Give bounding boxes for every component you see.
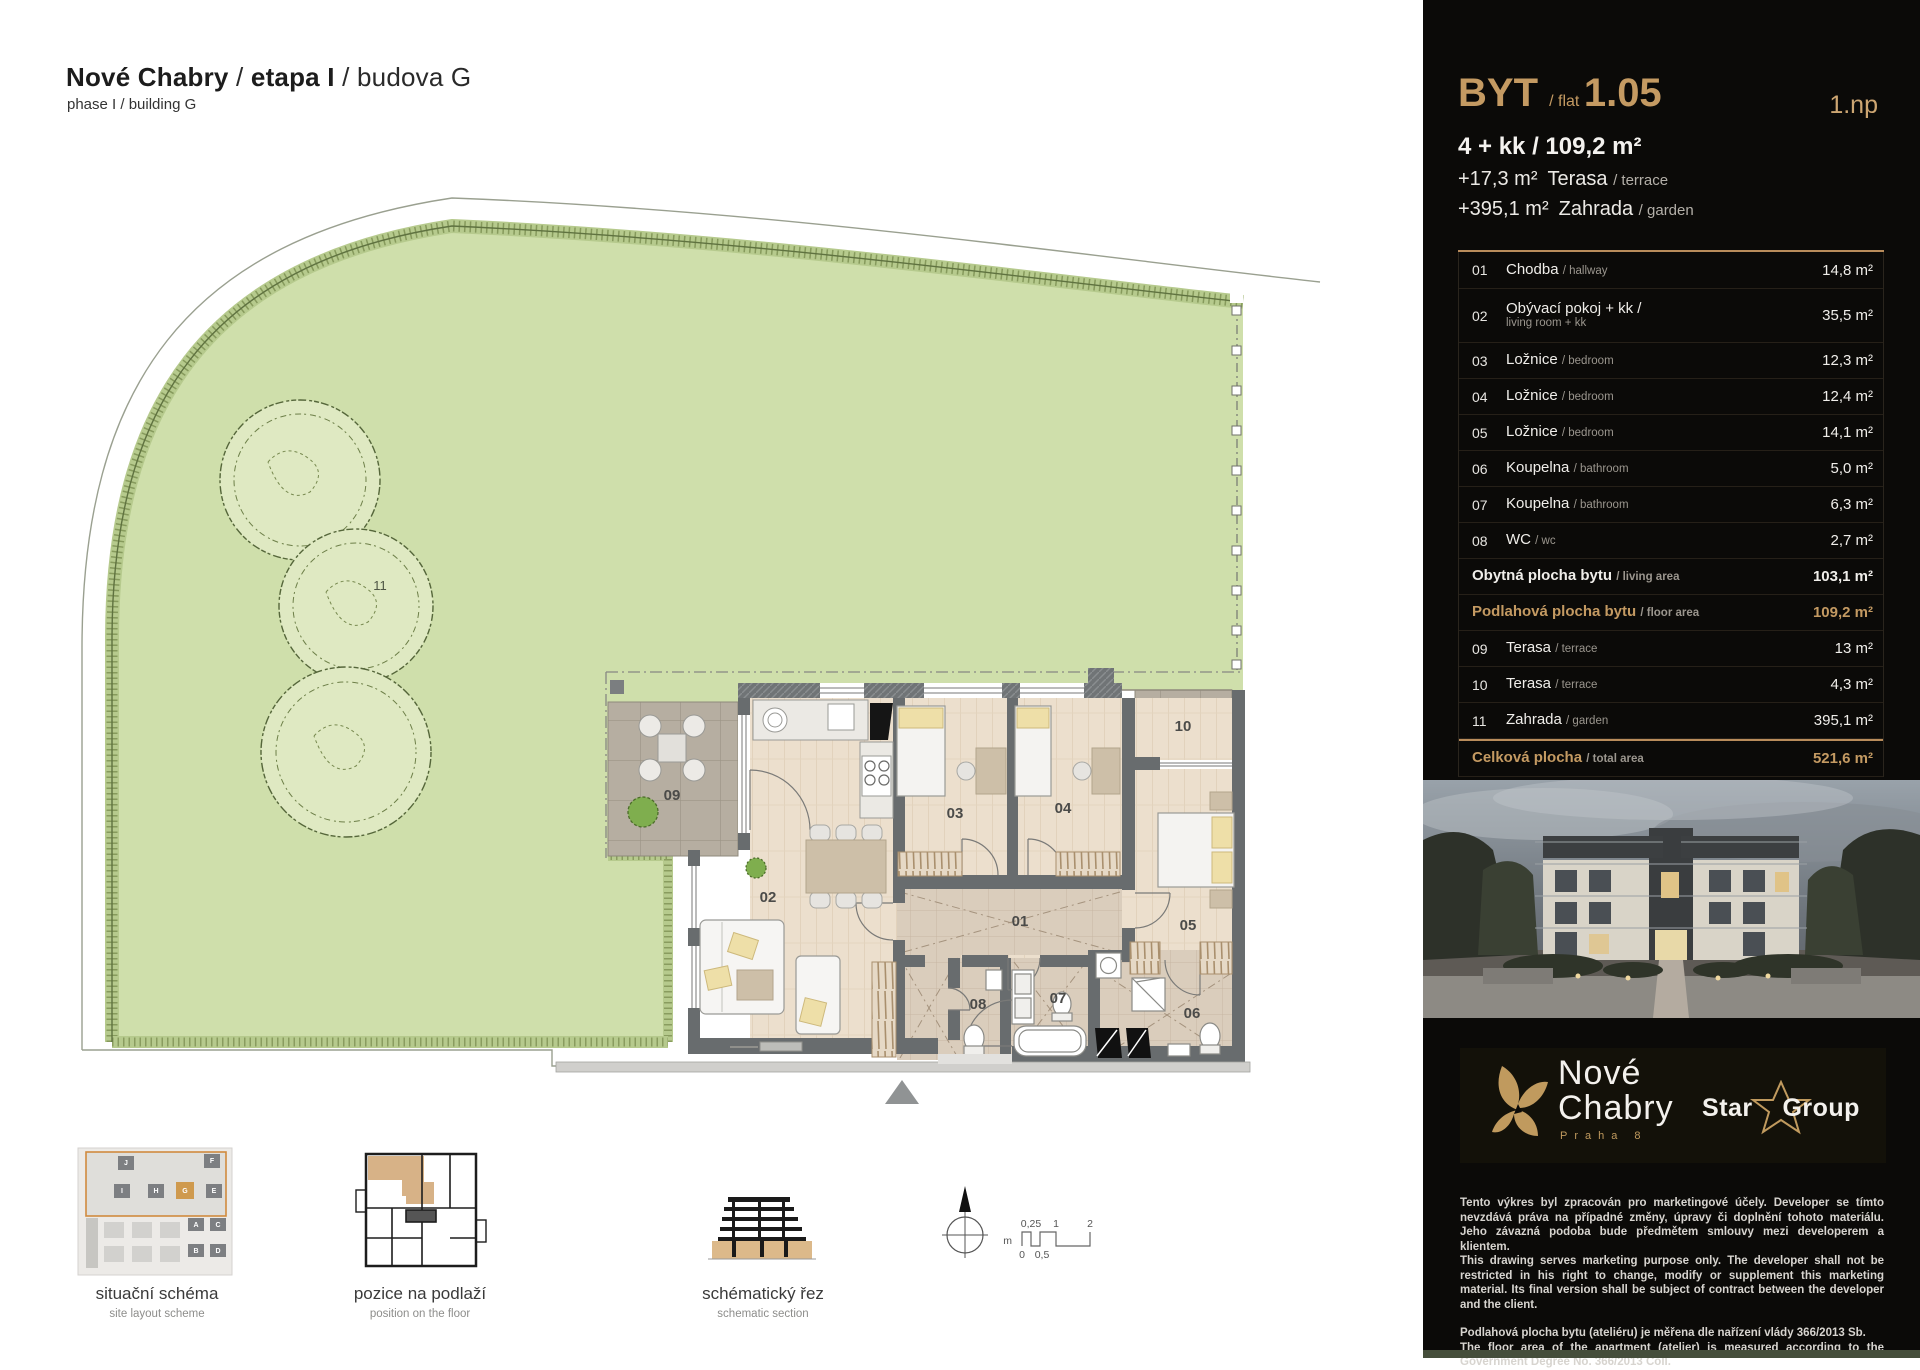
logo-block: Nové Chabry Praha 8 Star Group (1460, 1048, 1886, 1163)
scale-bar: 0,25 1 2 0 0,5 m (1003, 1218, 1093, 1261)
legal-paragraph-cz: Tento výkres byl zpracován pro marketing… (1460, 1196, 1884, 1254)
terrace-09 (608, 702, 738, 856)
section-thumbnail (708, 1197, 816, 1259)
terrace-area-line: +17,3 m²Terasa / terrace (1458, 168, 1886, 191)
nove-chabry-logo-icon (1488, 1058, 1550, 1153)
svg-text:m: m (1003, 1235, 1012, 1247)
legal-paragraph-en: This drawing serves marketing purpose on… (1460, 1254, 1884, 1312)
svg-text:2: 2 (1087, 1218, 1093, 1230)
flat-header: BYT / flat 1.05 1.np (1458, 70, 1886, 125)
table-row: 07 Koupelna / bathroom 6,3 m² (1459, 487, 1883, 523)
table-row: 02 Obývací pokoj + kk /living room + kk … (1459, 289, 1883, 343)
garden-area-line: +395,1 m²Zahrada / garden (1458, 198, 1886, 221)
info-panel: BYT / flat 1.05 1.np 4 + kk / 109,2 m² +… (1423, 0, 1920, 1358)
site-scheme-sublabel: site layout scheme (109, 1308, 204, 1320)
walkway (556, 1062, 1250, 1072)
room-label-04: 04 (1055, 800, 1072, 817)
svg-text:E: E (212, 1188, 217, 1195)
floor-position-label: pozice na podlaží (354, 1284, 487, 1303)
svg-text:1: 1 (1053, 1218, 1059, 1230)
floor-number: 1.np (1829, 82, 1878, 128)
room-label-09: 09 (664, 787, 681, 804)
plant-icon (746, 858, 766, 878)
plant-icon (628, 797, 658, 827)
floor-plan-drawing: 01 02 03 04 05 06 07 08 09 10 11 J F I H… (0, 0, 1423, 1358)
legal-text: Tento výkres byl zpracován pro marketing… (1460, 1196, 1884, 1370)
bottom-accent-strip (1423, 1350, 1920, 1358)
floor-position-thumbnail (356, 1154, 486, 1266)
room-table: 01 Chodba / hallway 14,8 m² 02 Obývací p… (1458, 252, 1884, 777)
star-group-logo: Star Group (1686, 1080, 1876, 1135)
svg-text:G: G (182, 1188, 188, 1195)
table-row: 09 Terasa / terrace 13 m² (1459, 631, 1883, 667)
flat-layout: 4 + kk / 109,2 m² (1458, 133, 1886, 161)
room-label-03: 03 (947, 805, 964, 822)
svg-text:H: H (153, 1188, 158, 1195)
tree-icon (279, 529, 433, 683)
table-row: 10 Terasa / terrace 4,3 m² (1459, 667, 1883, 703)
svg-text:F: F (210, 1158, 215, 1165)
table-row: 05 Ložnice / bedroom 14,1 m² (1459, 415, 1883, 451)
svg-text:0,5: 0,5 (1035, 1249, 1050, 1261)
table-row-living-area: Obytná plocha bytu / living area 103,1 m… (1459, 559, 1883, 595)
site-scheme-label: situační schéma (96, 1284, 219, 1303)
svg-text:B: B (193, 1248, 198, 1255)
legal-note-cz: Podlahová plocha bytu (ateliéru) je měře… (1460, 1326, 1884, 1341)
nove-chabry-logo-city: Praha 8 (1560, 1130, 1648, 1142)
table-row: 04 Ložnice / bedroom 12,4 m² (1459, 379, 1883, 415)
svg-text:D: D (215, 1248, 220, 1255)
svg-text:J: J (124, 1160, 128, 1167)
table-row: 08 WC / wc 2,7 m² (1459, 523, 1883, 559)
site-scheme-thumbnail: J F I H G E A C B D (78, 1148, 232, 1275)
table-row-floor-area: Podlahová plocha bytu / floor area 109,2… (1459, 595, 1883, 631)
room-label-01: 01 (1012, 913, 1029, 930)
table-row: 06 Koupelna / bathroom 5,0 m² (1459, 451, 1883, 487)
table-row-total-area: Celková plocha / total area 521,6 m² (1459, 739, 1883, 777)
room-label-07: 07 (1050, 990, 1067, 1007)
floor-position-sublabel: position on the floor (370, 1308, 471, 1320)
room-label-08: 08 (970, 996, 987, 1013)
section-label: schématický řez (702, 1284, 824, 1303)
table-row: 11 Zahrada / garden 395,1 m² (1459, 703, 1883, 739)
garden-label-11: 11 (373, 578, 387, 593)
svg-text:I: I (121, 1188, 123, 1195)
section-sublabel: schematic section (717, 1308, 808, 1320)
room-label-10: 10 (1175, 718, 1192, 735)
room-label-05: 05 (1180, 917, 1197, 934)
room-label-06: 06 (1184, 1005, 1201, 1022)
tree-icon (261, 667, 431, 837)
building-photo (1423, 780, 1920, 1018)
entrance-pad (938, 1054, 1012, 1064)
room-label-02: 02 (760, 889, 777, 906)
svg-text:0,25: 0,25 (1021, 1218, 1042, 1230)
svg-text:A: A (193, 1222, 198, 1229)
wardrobe (872, 962, 896, 1057)
table-row: 01 Chodba / hallway 14,8 m² (1459, 252, 1883, 289)
north-arrow-icon (942, 1186, 988, 1258)
boundary-post (610, 680, 624, 694)
svg-text:C: C (215, 1222, 220, 1229)
table-row: 03 Ložnice / bedroom 12,3 m² (1459, 343, 1883, 379)
svg-text:0: 0 (1019, 1249, 1025, 1261)
entrance-arrow-icon (885, 1080, 919, 1104)
nove-chabry-logo-text: Nové Chabry (1558, 1056, 1674, 1126)
dining-set (806, 825, 886, 908)
